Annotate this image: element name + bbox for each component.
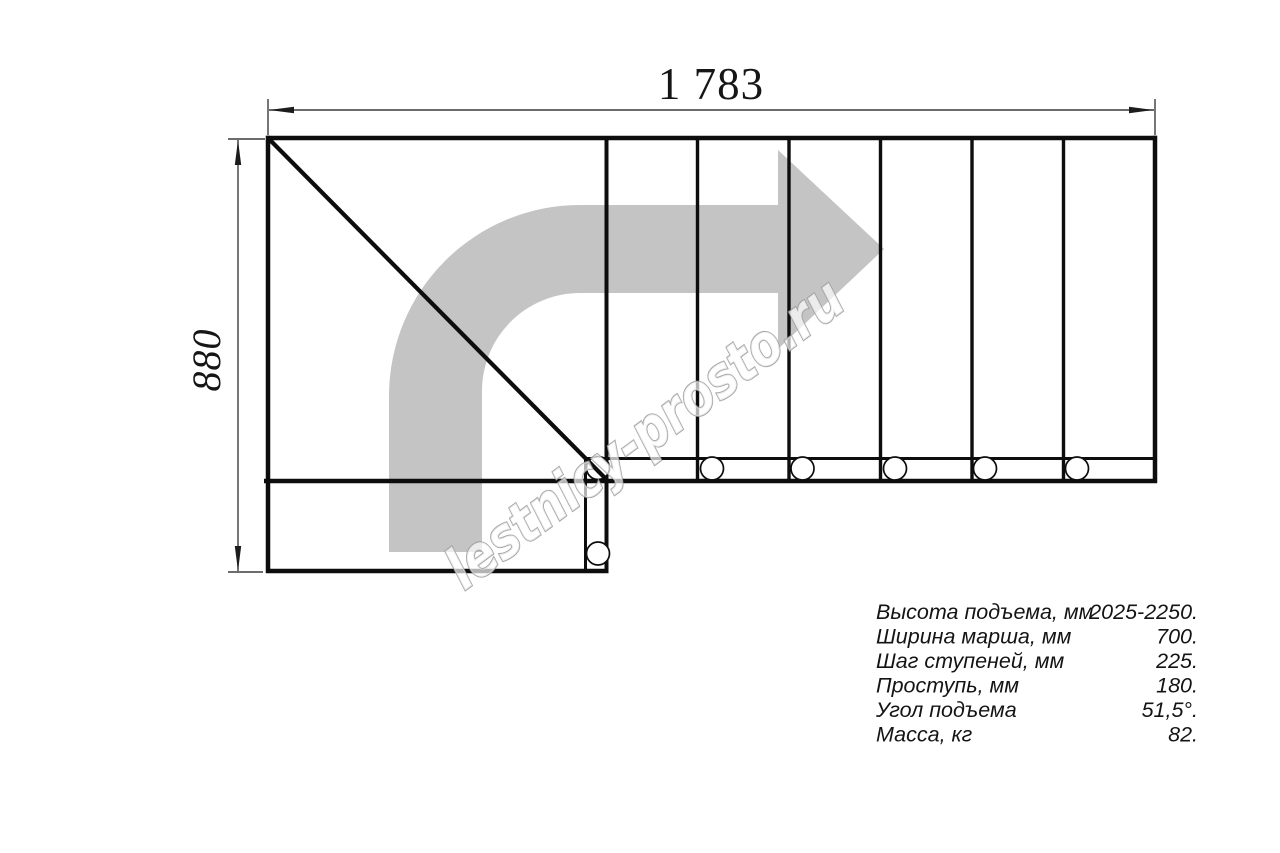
dim-arrow-up-icon: [235, 140, 241, 165]
spec-label: Угол подъема: [875, 698, 1017, 722]
spec-value: 51,5°.: [1142, 698, 1198, 722]
spec-label: Проступь, мм: [876, 674, 1019, 698]
step-lines: [698, 138, 1064, 481]
spec-value: 180.: [1156, 674, 1198, 698]
spec-value: 700.: [1156, 625, 1198, 649]
dim-arrow-left-icon: [269, 107, 294, 113]
stair-plan-svg: 1 783 880 lestnicy-prosto.ru Высота подъ…: [0, 0, 1280, 853]
dimension-left-value: 880: [184, 329, 229, 392]
bolt-circles: [587, 457, 1089, 566]
spec-value: 2025-2250.: [1088, 600, 1198, 624]
spec-label: Ширина марша, мм: [876, 625, 1072, 649]
spec-value: 225.: [1155, 649, 1198, 673]
spec-label: Масса, кг: [876, 723, 973, 747]
dimension-top: 1 783: [268, 59, 1155, 135]
dim-arrow-right-icon: [1129, 107, 1154, 113]
dim-arrow-down-icon: [235, 546, 241, 571]
dimension-top-value: 1 783: [658, 59, 764, 109]
spec-label: Высота подъема, мм: [876, 600, 1094, 624]
spec-value: 82.: [1168, 723, 1198, 747]
stair-plan-drawing: 1 783 880 lestnicy-prosto.ru Высота подъ…: [0, 0, 1280, 853]
spec-table: Высота подъема, мм 2025-2250. Ширина мар…: [875, 600, 1198, 747]
dimension-left: 880: [184, 139, 265, 572]
spec-label: Шаг ступеней, мм: [876, 649, 1064, 673]
